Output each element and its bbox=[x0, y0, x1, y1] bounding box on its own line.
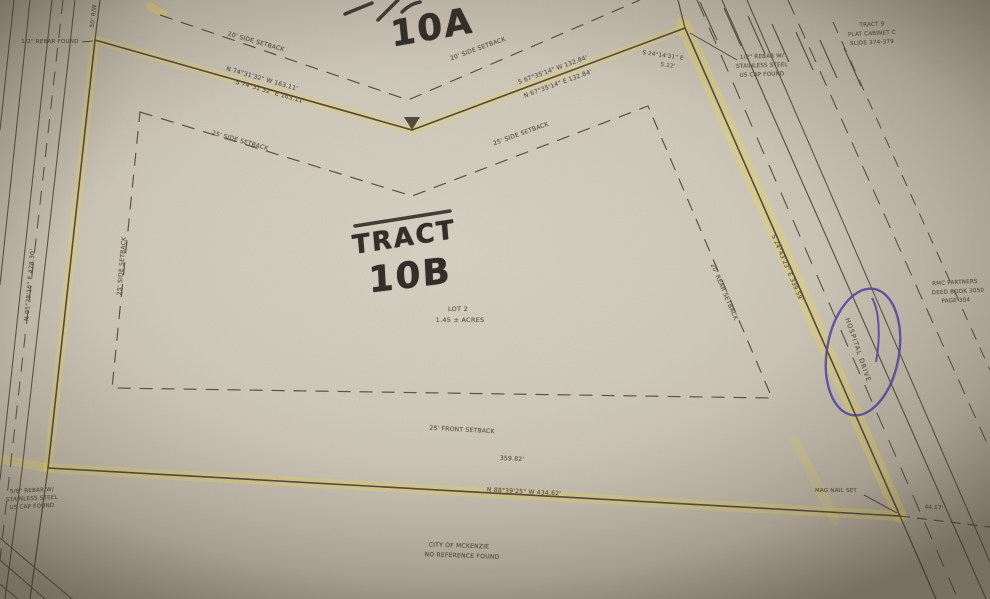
south-partial-dist-label: 359.82' bbox=[500, 455, 525, 463]
monument-se-label: MAG NAIL SET bbox=[815, 488, 857, 494]
scanned-plat-photo: 1/2" REBAR FOUND 50' R/W 20' SIDE SETBAC… bbox=[0, 0, 990, 599]
plat-linework bbox=[0, 0, 990, 599]
parcel-area-label: 1.45 ± ACRES bbox=[436, 316, 485, 324]
parcel-boundary bbox=[48, 28, 900, 516]
parcel-lot-label: LOT 2 bbox=[448, 305, 468, 313]
south-extra-dist-label: 44.17' bbox=[924, 504, 943, 511]
monument-nw-label: 1/2" REBAR FOUND bbox=[21, 39, 78, 45]
